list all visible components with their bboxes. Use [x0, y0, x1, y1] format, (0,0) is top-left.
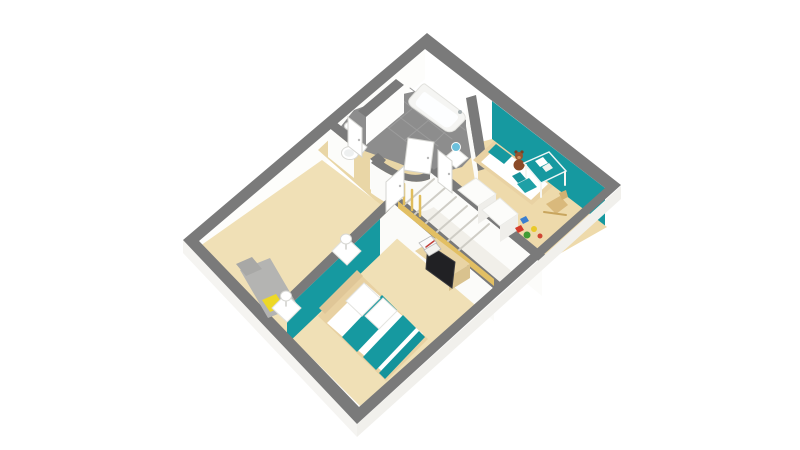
toy-ball-yellow	[531, 226, 537, 232]
bathroom-door-leaf-open	[404, 138, 434, 174]
door-handle	[448, 173, 450, 175]
door-handle	[427, 157, 429, 159]
toilet-seat	[344, 149, 354, 157]
bedside-lamp	[341, 234, 352, 244]
door-handle	[399, 185, 401, 187]
teddy-muzzle	[517, 156, 521, 159]
floor-plan-render	[0, 0, 800, 450]
child-lamp	[452, 143, 461, 152]
door-handle	[358, 139, 360, 141]
bathtub-faucet	[458, 110, 462, 114]
floor-plan-canvas	[0, 0, 800, 450]
bedside-lamp	[281, 291, 292, 301]
teddy-body	[514, 160, 525, 171]
toy-ball-red	[538, 234, 543, 239]
toy-ball-green	[524, 232, 531, 239]
